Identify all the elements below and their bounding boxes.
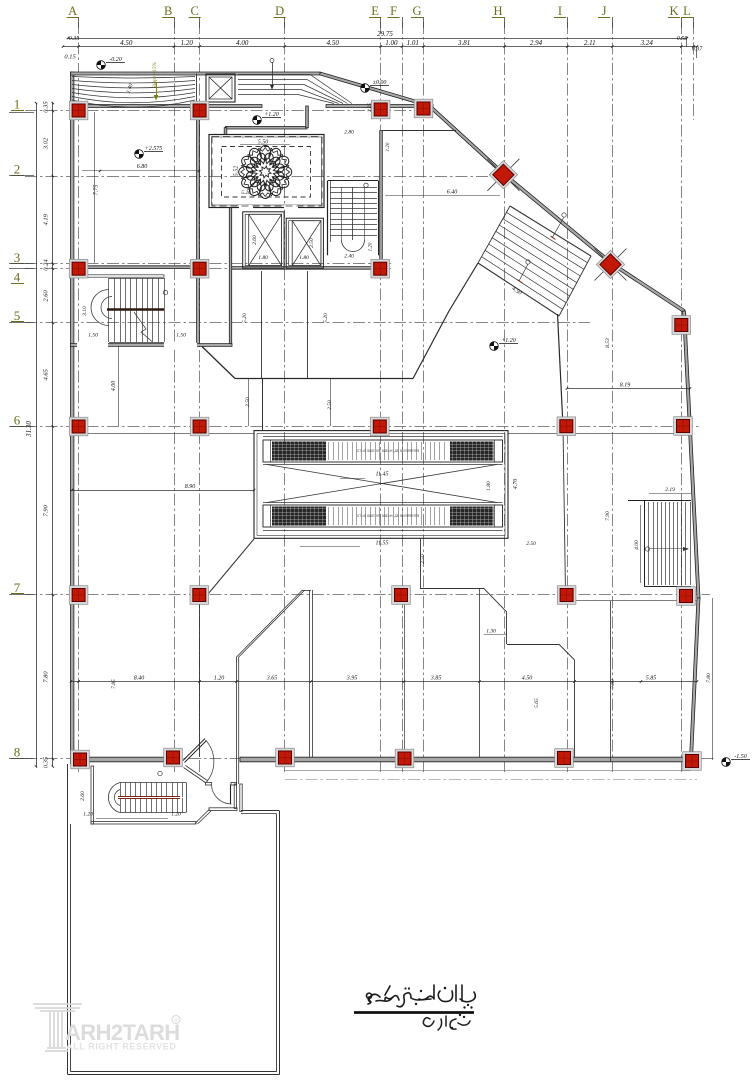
svg-text:1.80: 1.80	[486, 481, 492, 491]
svg-text:L: L	[683, 4, 691, 18]
svg-text:5.65: 5.65	[534, 698, 540, 708]
svg-text:1.20: 1.20	[171, 812, 181, 818]
svg-text:I: I	[558, 4, 562, 18]
svg-text:1.50: 1.50	[176, 333, 186, 339]
svg-text:29.75: 29.75	[377, 30, 393, 38]
svg-text:2.19: 2.19	[665, 487, 675, 493]
svg-text:8.53: 8.53	[605, 338, 611, 348]
svg-text:±0.00: ±0.00	[373, 80, 387, 86]
svg-text:4.00: 4.00	[236, 39, 249, 47]
svg-text:E: E	[371, 4, 379, 18]
svg-text:3.81: 3.81	[457, 39, 470, 47]
svg-text:7.90: 7.90	[605, 511, 611, 521]
svg-text:1.01: 1.01	[407, 39, 419, 47]
svg-text:F: F	[390, 4, 397, 18]
svg-text:5.85: 5.85	[646, 676, 657, 682]
svg-text:2.50: 2.50	[245, 397, 251, 407]
svg-text:2.50: 2.50	[526, 541, 536, 547]
svg-text:A: A	[68, 4, 77, 18]
svg-text:G: G	[412, 4, 421, 18]
svg-text:4: 4	[14, 270, 21, 285]
svg-text:ALL RIGHT RESERVED: ALL RIGHT RESERVED	[66, 1042, 176, 1052]
svg-text:2.60: 2.60	[252, 235, 258, 245]
svg-text:3.10: 3.10	[82, 306, 88, 317]
svg-text:B: B	[164, 4, 172, 18]
svg-text:8: 8	[14, 745, 21, 760]
svg-text:5.52: 5.52	[234, 166, 240, 177]
svg-text:3: 3	[14, 250, 21, 265]
svg-text:1.80: 1.80	[258, 255, 268, 261]
svg-text:2.50: 2.50	[327, 400, 333, 410]
svg-text:-1.50: -1.50	[734, 754, 747, 760]
svg-text:8.40: 8.40	[134, 675, 145, 682]
svg-text:+1.20: +1.20	[501, 338, 516, 344]
svg-text:0.35: 0.35	[43, 101, 50, 113]
svg-text:5.20: 5.20	[241, 190, 251, 196]
svg-text:3.02: 3.02	[43, 137, 50, 150]
svg-text:6.80: 6.80	[137, 164, 148, 170]
svg-text:1.00: 1.00	[385, 39, 398, 47]
svg-text:1.50: 1.50	[88, 333, 98, 339]
svg-text:4.00: 4.00	[110, 381, 117, 392]
svg-text:3.95: 3.95	[346, 676, 358, 682]
svg-text:0.35: 0.35	[43, 756, 50, 768]
svg-text:1: 1	[14, 97, 21, 112]
svg-text:1.20: 1.20	[386, 142, 391, 151]
svg-text:4.70: 4.70	[512, 479, 519, 490]
svg-text:7.85: 7.85	[111, 679, 117, 689]
svg-text:1.80: 1.80	[299, 255, 309, 261]
svg-text:0.15: 0.15	[64, 53, 76, 60]
svg-text:11.45: 11.45	[375, 471, 388, 478]
svg-text:4.50: 4.50	[120, 39, 133, 47]
svg-text:2.60: 2.60	[80, 791, 86, 801]
svg-text:0.24: 0.24	[43, 259, 50, 271]
svg-text:11.55: 11.55	[375, 541, 388, 547]
svg-text:3.85: 3.85	[430, 676, 442, 682]
svg-text:5.20: 5.20	[323, 313, 329, 323]
svg-text:2.40: 2.40	[344, 253, 354, 260]
svg-text:2.80: 2.80	[344, 130, 354, 136]
svg-text:Escalator=6 35° H=300 cm 10: Escalator=6 35° H=300 cm 1000 d=1.2	[357, 449, 419, 453]
svg-text:D: D	[275, 4, 284, 18]
svg-text:8.90: 8.90	[185, 484, 196, 490]
svg-text:2.50: 2.50	[309, 238, 315, 248]
svg-text:3.65: 3.65	[266, 676, 278, 682]
svg-text:31.30: 31.30	[25, 421, 33, 438]
svg-text:2.11: 2.11	[584, 39, 596, 47]
svg-text:0.35: 0.35	[69, 36, 80, 42]
svg-text:3.24: 3.24	[640, 39, 654, 47]
svg-text:+2.575: +2.575	[145, 146, 163, 152]
svg-text:C: C	[191, 4, 199, 18]
svg-text:2.60: 2.60	[43, 289, 50, 301]
svg-text:1.20: 1.20	[214, 676, 225, 682]
svg-text:4.65: 4.65	[43, 368, 50, 380]
svg-text:5: 5	[14, 308, 21, 323]
svg-text:J: J	[602, 4, 607, 18]
svg-text:6: 6	[14, 413, 21, 428]
svg-text:2.50: 2.50	[420, 554, 426, 564]
svg-text:7.80: 7.80	[43, 671, 50, 683]
svg-text:4.50: 4.50	[522, 675, 533, 682]
svg-text:4.00: 4.00	[633, 540, 640, 550]
svg-text:H: H	[493, 4, 502, 18]
svg-text:-0.20: -0.20	[109, 57, 122, 63]
svg-text:7.90: 7.90	[43, 504, 50, 516]
svg-text:7.80: 7.80	[610, 679, 616, 689]
svg-text:7.80: 7.80	[706, 673, 712, 683]
svg-text:1.30: 1.30	[486, 629, 496, 635]
svg-text:2.94: 2.94	[530, 39, 543, 47]
svg-text:4.19: 4.19	[43, 213, 50, 225]
svg-text:K: K	[669, 4, 678, 18]
svg-text:6.40: 6.40	[447, 189, 458, 196]
svg-text:0.37: 0.37	[692, 47, 704, 53]
svg-text:Slope=15%: Slope=15%	[152, 62, 158, 88]
svg-text:5.20: 5.20	[242, 313, 248, 323]
svg-text:+1.20: +1.20	[264, 112, 279, 118]
svg-text:R: R	[174, 1018, 178, 1024]
svg-text:1.20: 1.20	[369, 242, 374, 251]
svg-text:1.20: 1.20	[83, 812, 93, 818]
svg-text:4.50: 4.50	[327, 39, 340, 47]
svg-text:0.58: 0.58	[677, 36, 688, 42]
svg-text:2: 2	[14, 162, 21, 177]
svg-text:8.19: 8.19	[620, 383, 631, 389]
svg-text:7.75: 7.75	[94, 185, 100, 196]
svg-text:7: 7	[14, 580, 21, 595]
svg-text:Escalator=6 35° H=300 cm 10: Escalator=6 35° H=300 cm 1000 d=1.2	[357, 514, 419, 518]
svg-text:1.20: 1.20	[181, 39, 194, 47]
